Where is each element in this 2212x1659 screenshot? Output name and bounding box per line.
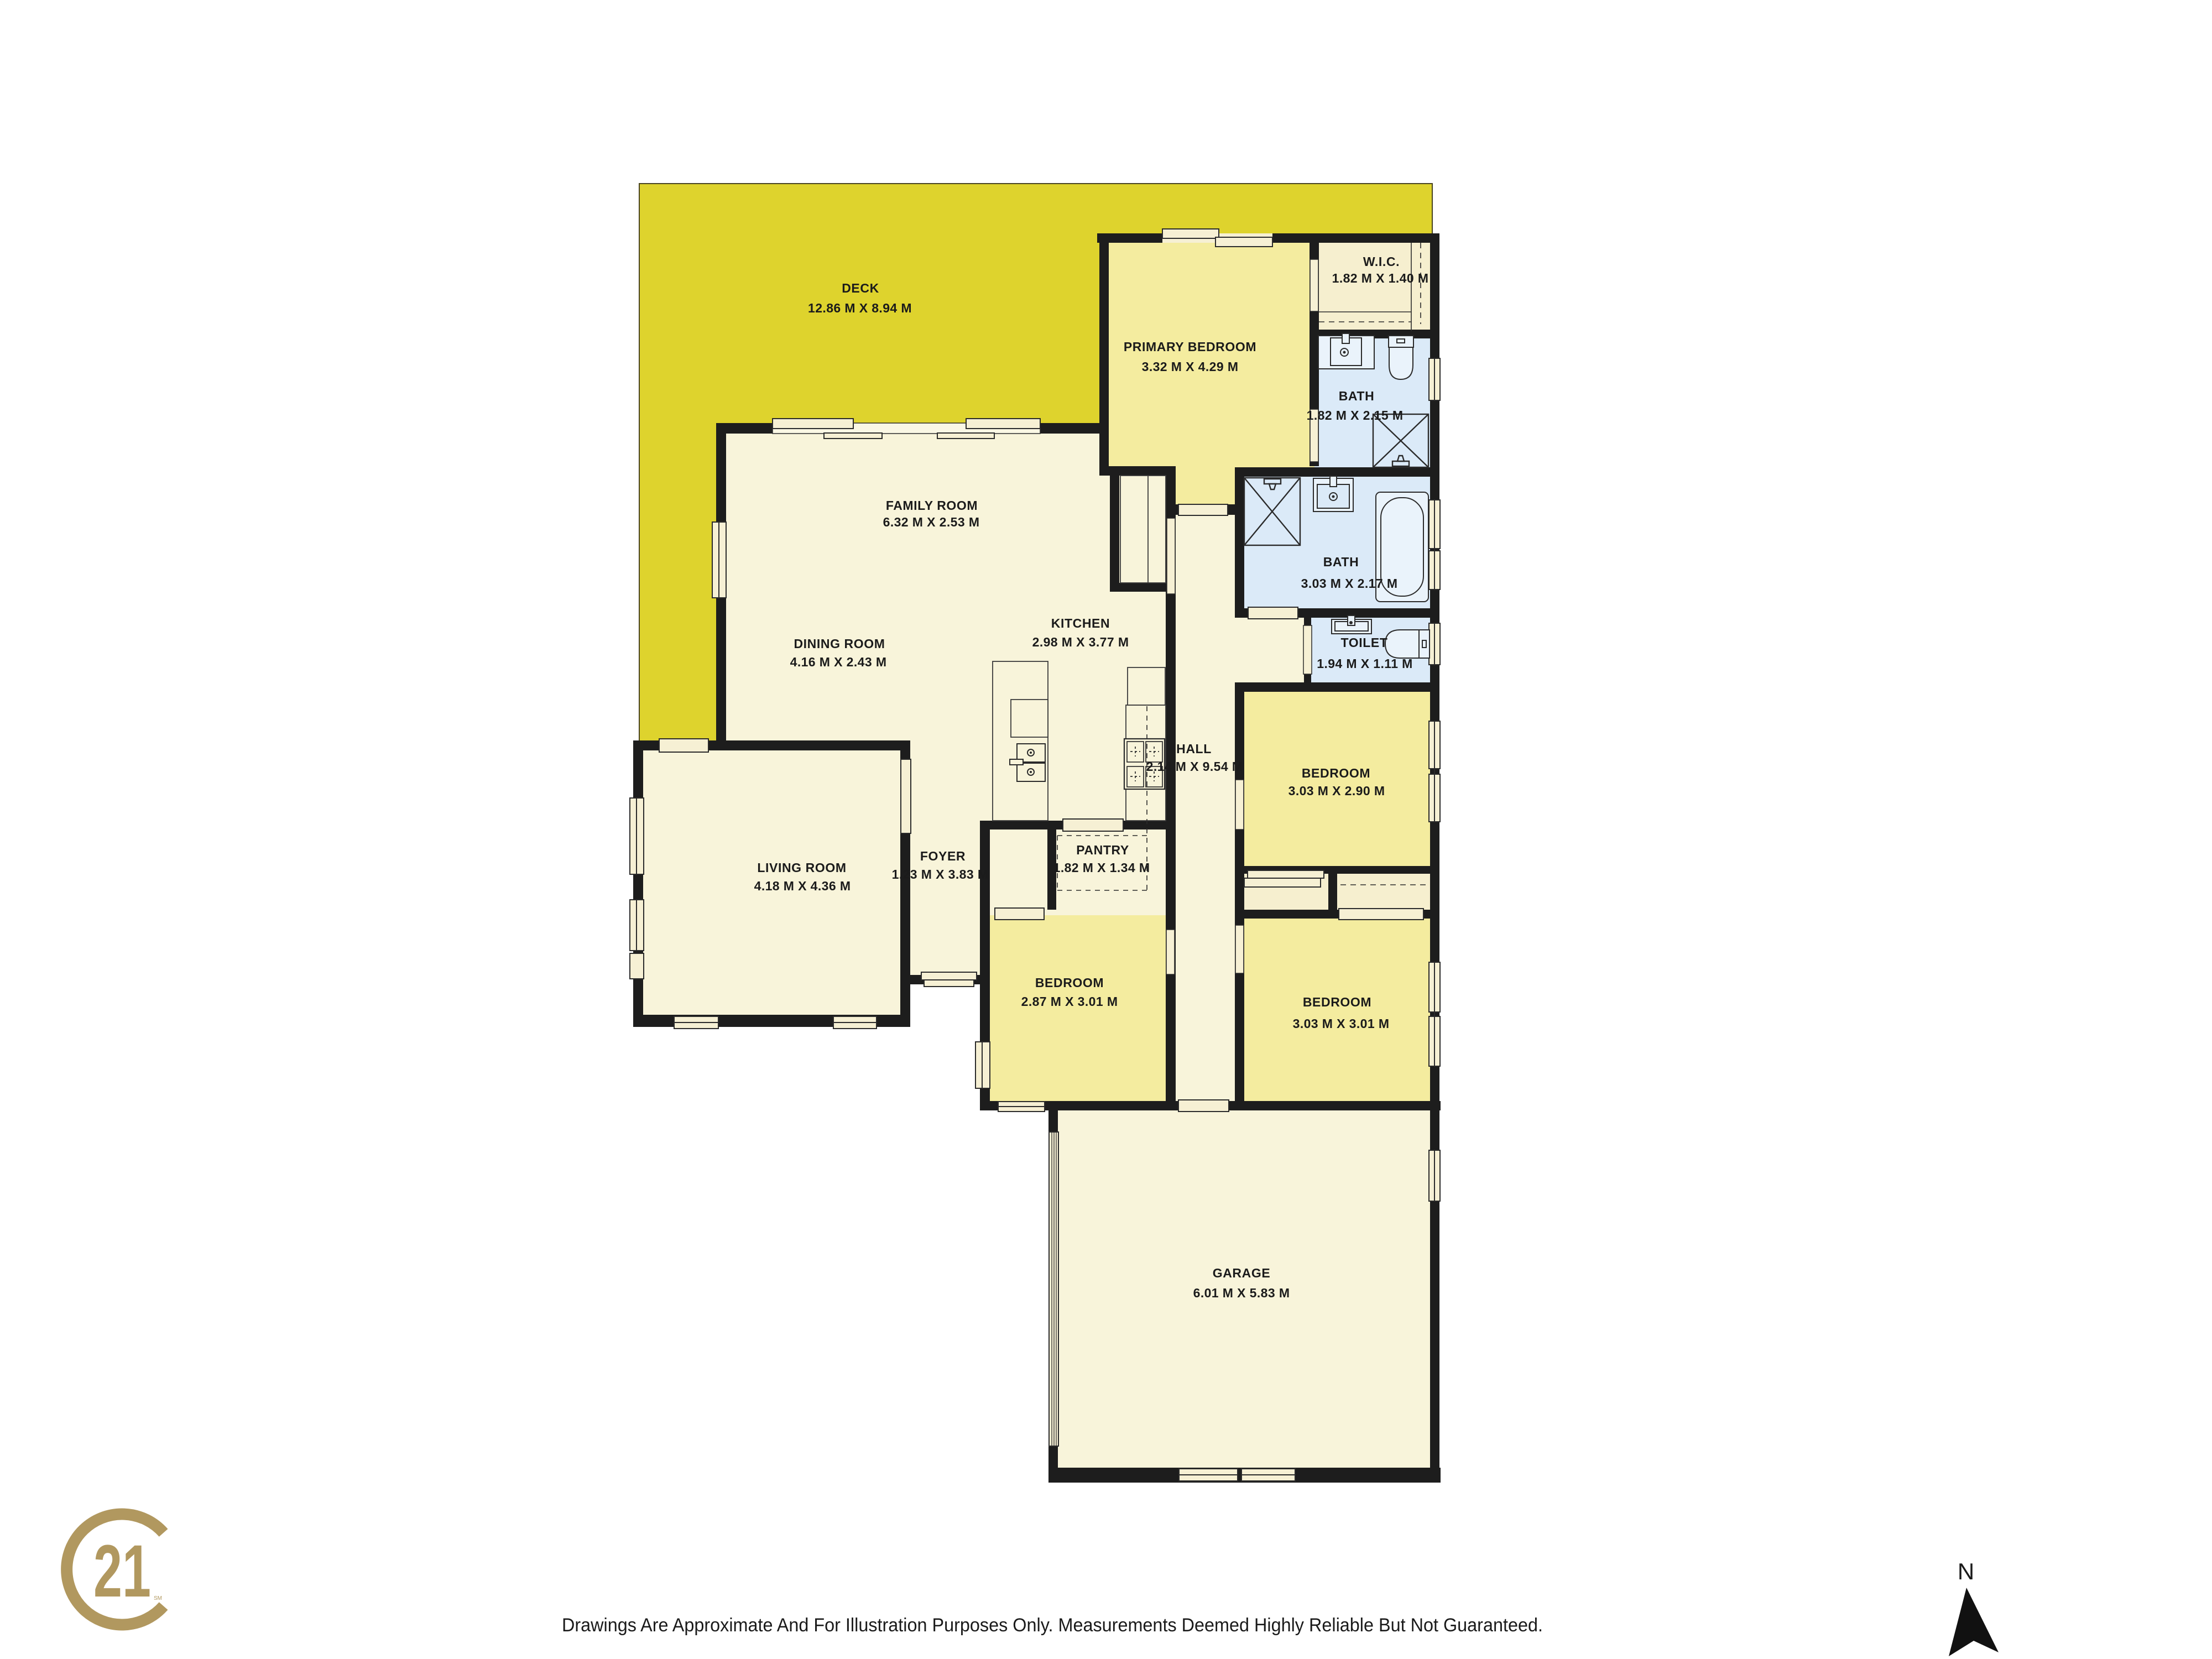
svg-text:4.18 M X 4.36 M: 4.18 M X 4.36 M <box>754 879 851 893</box>
svg-text:3.32 M X 4.29 M: 3.32 M X 4.29 M <box>1142 359 1239 374</box>
svg-text:1.23 M X 3.83 M: 1.23 M X 3.83 M <box>892 867 989 881</box>
svg-text:BEDROOM: BEDROOM <box>1302 766 1370 780</box>
svg-text:BATH: BATH <box>1323 555 1359 569</box>
svg-text:1.82 M X 2.15 M: 1.82 M X 2.15 M <box>1307 408 1404 422</box>
svg-text:GARAGE: GARAGE <box>1213 1266 1271 1280</box>
svg-text:1.82 M X 1.34 M: 1.82 M X 1.34 M <box>1053 860 1150 875</box>
svg-text:4.16 M X 2.43 M: 4.16 M X 2.43 M <box>790 655 887 669</box>
svg-text:DECK: DECK <box>842 281 879 295</box>
svg-text:N: N <box>1958 1558 1974 1584</box>
svg-text:6.32 M X 2.53 M: 6.32 M X 2.53 M <box>883 515 980 529</box>
svg-text:3.03 M X 3.01 M: 3.03 M X 3.01 M <box>1293 1016 1390 1031</box>
svg-text:12.86 M X 8.94 M: 12.86 M X 8.94 M <box>808 301 912 315</box>
svg-text:1.82 M X 1.40 M: 1.82 M X 1.40 M <box>1332 271 1429 285</box>
svg-text:Drawings Are Approximate And F: Drawings Are Approximate And For Illustr… <box>562 1615 1543 1636</box>
svg-text:FAMILY ROOM: FAMILY ROOM <box>886 498 978 513</box>
svg-text:W.I.C.: W.I.C. <box>1363 254 1400 269</box>
svg-text:3.03 M X 2.17 M: 3.03 M X 2.17 M <box>1301 576 1398 591</box>
svg-text:21: 21 <box>93 1530 151 1613</box>
svg-text:2.98 M X 3.77 M: 2.98 M X 3.77 M <box>1032 635 1129 649</box>
svg-text:LIVING ROOM: LIVING ROOM <box>757 860 846 875</box>
svg-text:FOYER: FOYER <box>920 849 966 863</box>
svg-text:2.14 M X 9.54 M: 2.14 M X 9.54 M <box>1146 759 1243 774</box>
svg-text:PANTRY: PANTRY <box>1076 843 1129 857</box>
svg-text:BEDROOM: BEDROOM <box>1303 995 1371 1009</box>
svg-text:TOILET: TOILET <box>1341 635 1388 650</box>
svg-text:6.01 M X 5.83 M: 6.01 M X 5.83 M <box>1193 1286 1290 1300</box>
svg-text:PRIMARY BEDROOM: PRIMARY BEDROOM <box>1124 340 1256 354</box>
svg-text:SM: SM <box>154 1595 162 1601</box>
svg-text:BATH: BATH <box>1339 389 1375 403</box>
svg-text:HALL: HALL <box>1176 742 1212 756</box>
svg-text:DINING ROOM: DINING ROOM <box>794 637 885 651</box>
svg-text:BEDROOM: BEDROOM <box>1035 975 1104 990</box>
svg-text:KITCHEN: KITCHEN <box>1051 616 1110 630</box>
svg-text:1.94 M X 1.11 M: 1.94 M X 1.11 M <box>1317 656 1412 671</box>
svg-text:2.87 M X 3.01 M: 2.87 M X 3.01 M <box>1021 994 1118 1009</box>
svg-text:3.03 M X 2.90 M: 3.03 M X 2.90 M <box>1288 784 1385 798</box>
